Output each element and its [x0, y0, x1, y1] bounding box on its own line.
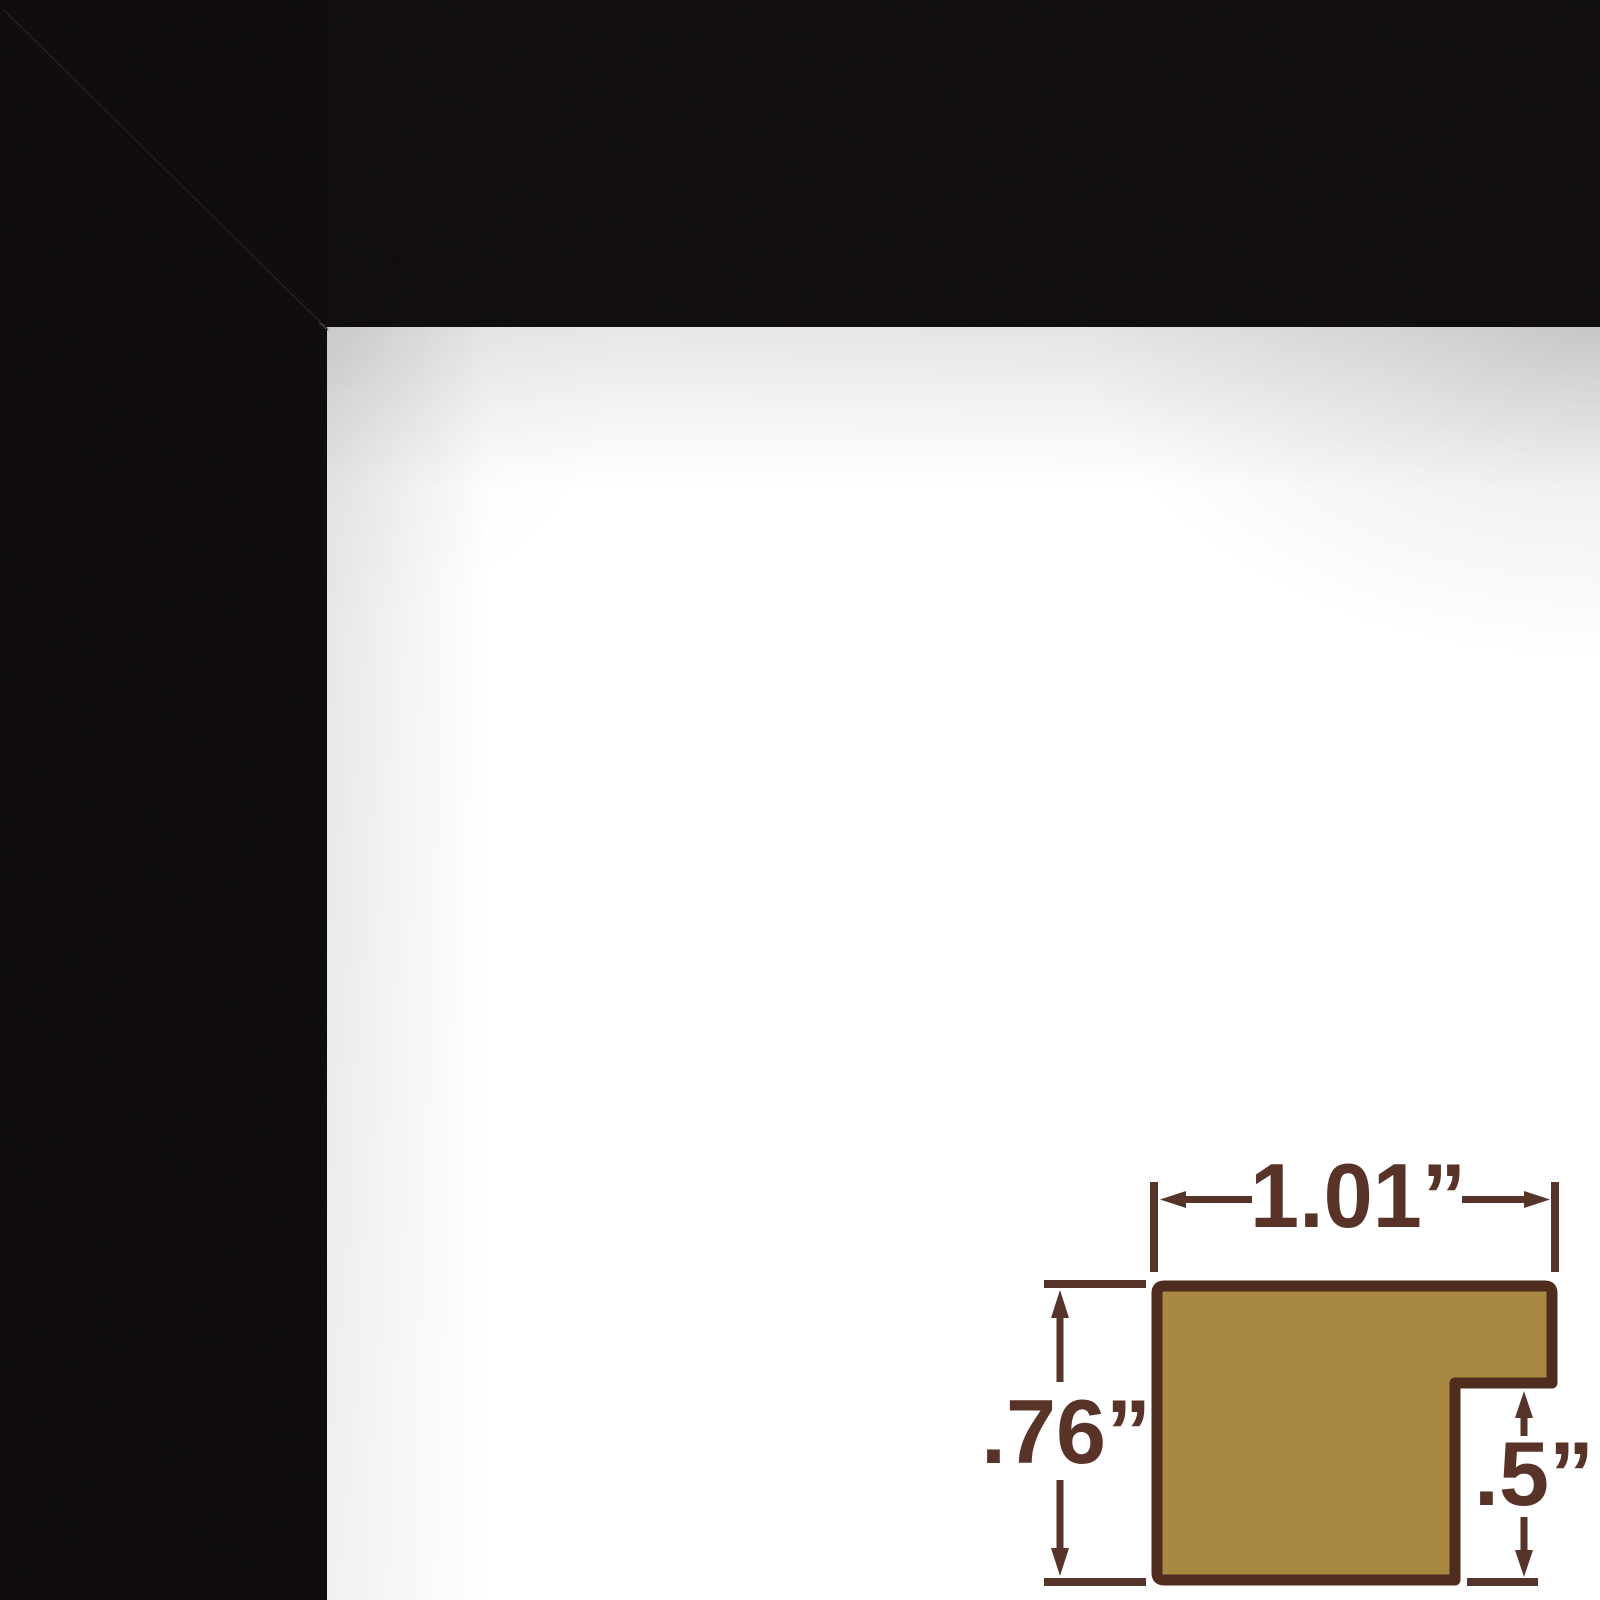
svg-text:.76”: .76” [981, 1382, 1151, 1483]
svg-text:1.01”: 1.01” [1250, 1146, 1466, 1247]
svg-text:.5”: .5” [1474, 1424, 1594, 1525]
